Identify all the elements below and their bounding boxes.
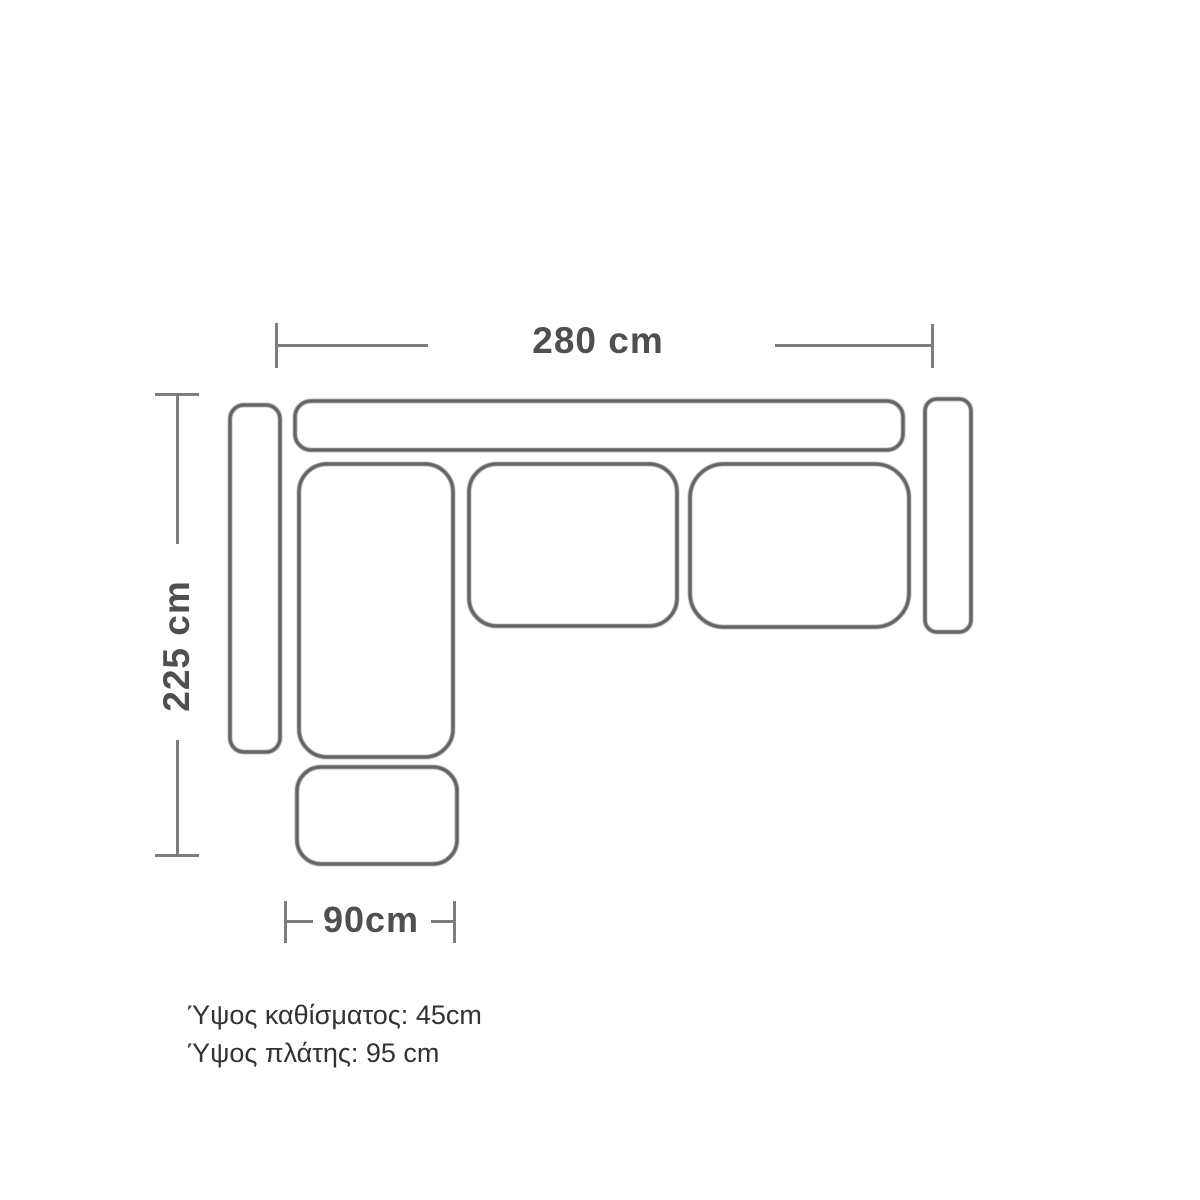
- top-dimension-right-line: [775, 344, 933, 347]
- top-width-dimension-label: 280 cm: [518, 320, 678, 362]
- backrest-outline: [293, 399, 905, 452]
- right-seat-cushion-outline: [688, 462, 911, 629]
- seat-height-note: Ύψος καθίσματος: 45cm: [187, 996, 482, 1034]
- sofa-dimension-diagram: 280 cm 225 cm 90cm Ύψος καθίσματος: 45cm…: [0, 0, 1200, 1200]
- top-dimension-left-line: [275, 344, 428, 347]
- back-height-note: Ύψος πλάτης: 95 cm: [187, 1034, 482, 1072]
- ottoman-outline: [295, 765, 459, 866]
- height-notes: Ύψος καθίσματος: 45cm Ύψος πλάτης: 95 cm: [187, 996, 482, 1072]
- left-dimension-bottom-line: [176, 740, 179, 856]
- left-armrest-outline: [228, 403, 282, 754]
- left-depth-dimension-text: 225 cm: [156, 580, 198, 712]
- bottom-dimension-right-tick: [453, 901, 456, 943]
- right-armrest-outline: [923, 397, 973, 634]
- chaise-seat-outline: [297, 462, 455, 759]
- middle-seat-cushion-outline: [467, 462, 679, 628]
- top-dimension-right-tick: [931, 324, 934, 368]
- chaise-width-dimension-label: 90cm: [311, 899, 431, 941]
- left-dimension-bottom-tick: [155, 854, 199, 857]
- bottom-dimension-left-line: [286, 920, 313, 923]
- left-dimension-top-line: [176, 394, 179, 544]
